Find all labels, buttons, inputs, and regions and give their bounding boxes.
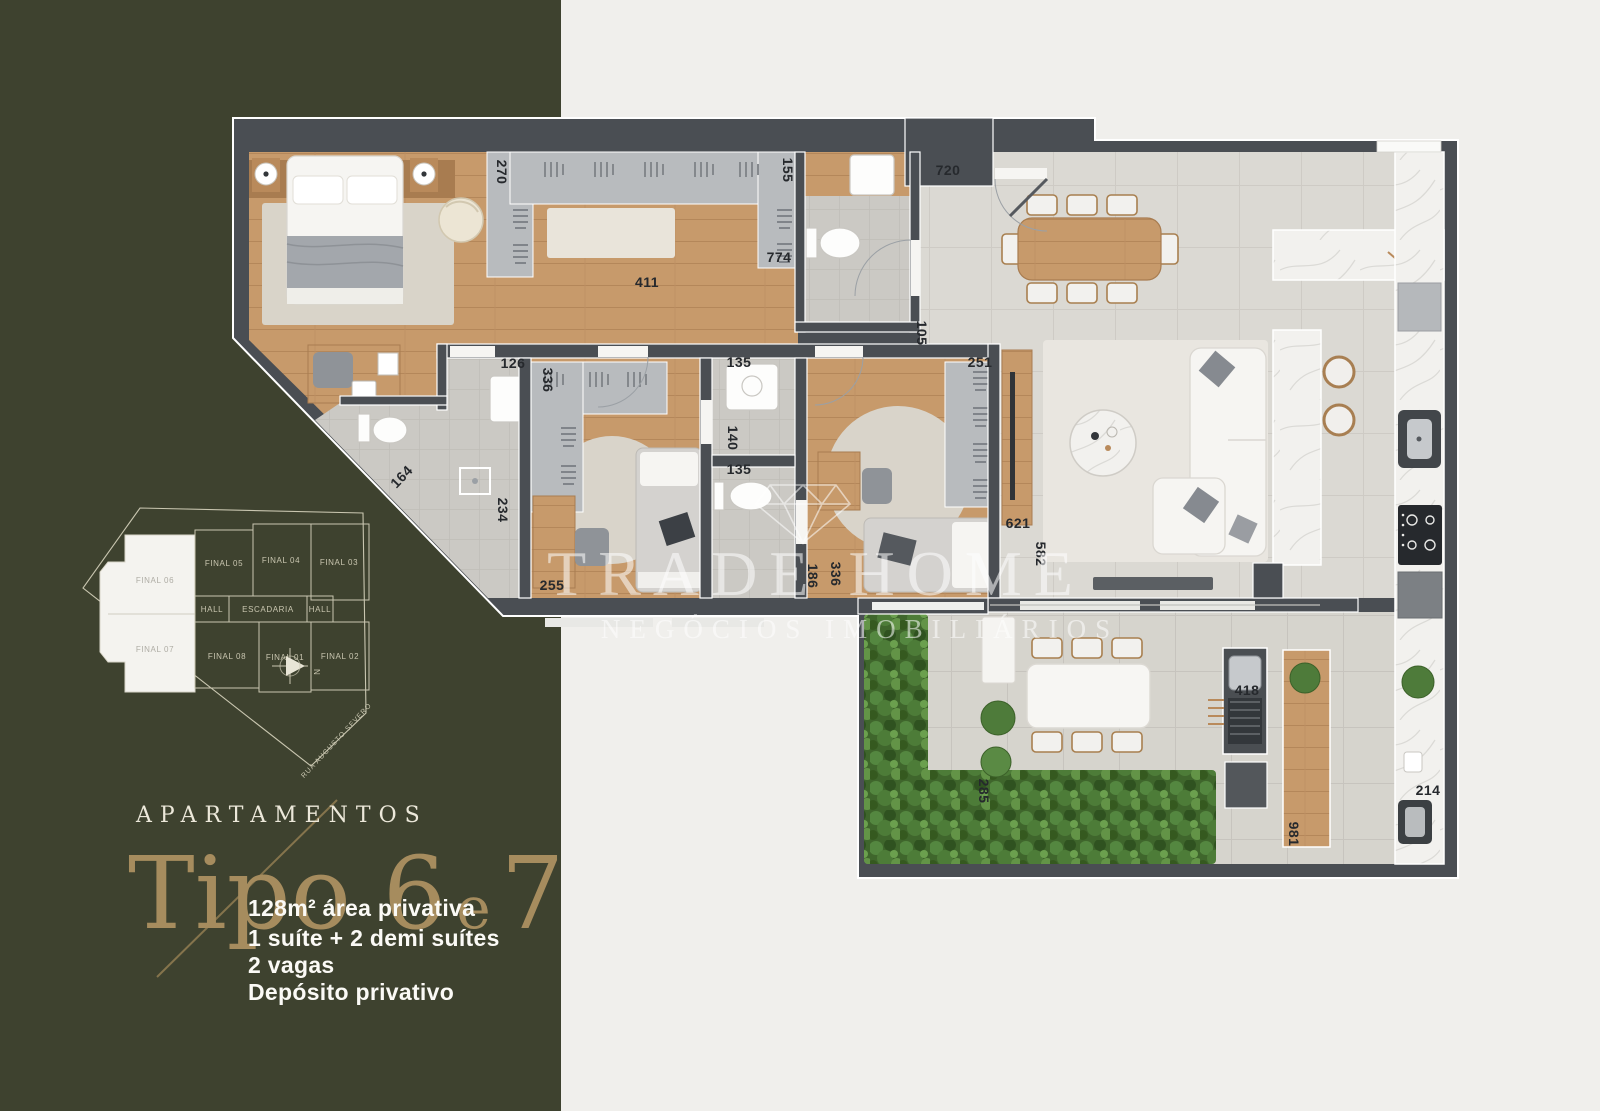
- sliding-door-panel: [1093, 577, 1213, 590]
- detail-area: 128m² área privativa: [248, 895, 475, 921]
- keyplan-unit-final06: FINAL 06: [136, 576, 174, 585]
- coffee-table: [1070, 410, 1136, 476]
- keyplan-unit-final05: FINAL 05: [205, 559, 243, 568]
- dim-411: 411: [635, 274, 659, 290]
- keyplan-unit-final03: FINAL 03: [320, 558, 358, 567]
- dining-table: [1018, 218, 1161, 280]
- master-bed: [287, 156, 403, 304]
- dim-285: 285: [976, 779, 992, 804]
- terrace-dining: [1027, 638, 1150, 752]
- sheet-canvas: FINAL 06 FINAL 07 FINAL 05 FINAL 04 FINA…: [0, 0, 1600, 1111]
- desk-area: [308, 345, 400, 403]
- dim-105: 105: [914, 321, 930, 346]
- dim-135-b: 135: [727, 461, 752, 477]
- dim-251: 251: [968, 354, 993, 370]
- watermark-brand: TRADE HOME: [547, 538, 1085, 609]
- cooktop: [1398, 505, 1442, 565]
- keyplan-hall-left: HALL: [201, 605, 223, 614]
- dim-981: 981: [1286, 822, 1302, 847]
- dim-126: 126: [501, 355, 526, 371]
- compass-n-label: N: [312, 669, 321, 675]
- eyebrow-label: APARTAMENTOS: [135, 803, 428, 828]
- dim-270: 270: [494, 160, 510, 185]
- floorplan-sheet: FINAL 06 FINAL 07 FINAL 05 FINAL 04 FINA…: [0, 0, 1600, 1111]
- detail-suites: 1 suíte + 2 demi suítes: [248, 925, 500, 951]
- bedroom3-chair: [862, 468, 892, 504]
- detail-vagas: 2 vagas: [248, 952, 335, 978]
- dim-621: 621: [1006, 515, 1031, 531]
- detail-deposito: Depósito privativo: [248, 979, 454, 1005]
- dim-234: 234: [495, 498, 511, 523]
- keyplan-unit-final07: FINAL 07: [136, 645, 174, 654]
- lamp-right-icon: [413, 163, 435, 185]
- dim-418: 418: [1235, 682, 1260, 698]
- terrace-plant-1: [981, 701, 1015, 735]
- keyplan-unit-final02: FINAL 02: [321, 652, 359, 661]
- dim-336-a: 336: [540, 368, 556, 393]
- tv-icon: [1010, 372, 1015, 500]
- terrace-table: [1027, 664, 1150, 728]
- keyplan-unit-final08: FINAL 08: [208, 652, 246, 661]
- deck-bar: [1283, 650, 1330, 847]
- armchair: [439, 198, 483, 242]
- kitchen-sink: [1398, 410, 1441, 468]
- dim-135-a: 135: [727, 354, 752, 370]
- keyplan-escadaria: ESCADARIA: [242, 605, 294, 614]
- fridge: [1398, 283, 1441, 331]
- dim-140: 140: [725, 426, 741, 451]
- oven: [1398, 572, 1442, 618]
- tv-panel: [1002, 350, 1032, 525]
- keyplan-hall-right: HALL: [309, 605, 331, 614]
- hedge-bottom: [864, 770, 1216, 864]
- counter-plant: [1402, 666, 1434, 698]
- kitchen-island: [1273, 330, 1321, 565]
- dim-155: 155: [780, 158, 796, 183]
- dim-214: 214: [1416, 782, 1441, 798]
- dim-774: 774: [767, 249, 792, 265]
- terrace-plant-2: [981, 747, 1011, 777]
- dim-720: 720: [936, 162, 961, 178]
- keyplan-unit-final04: FINAL 04: [262, 556, 300, 565]
- closet-rug: [547, 208, 675, 258]
- lamp-left-icon: [255, 163, 277, 185]
- watermark-tagline: NEGÓCIOS IMOBILIÁRIOS: [601, 614, 1119, 644]
